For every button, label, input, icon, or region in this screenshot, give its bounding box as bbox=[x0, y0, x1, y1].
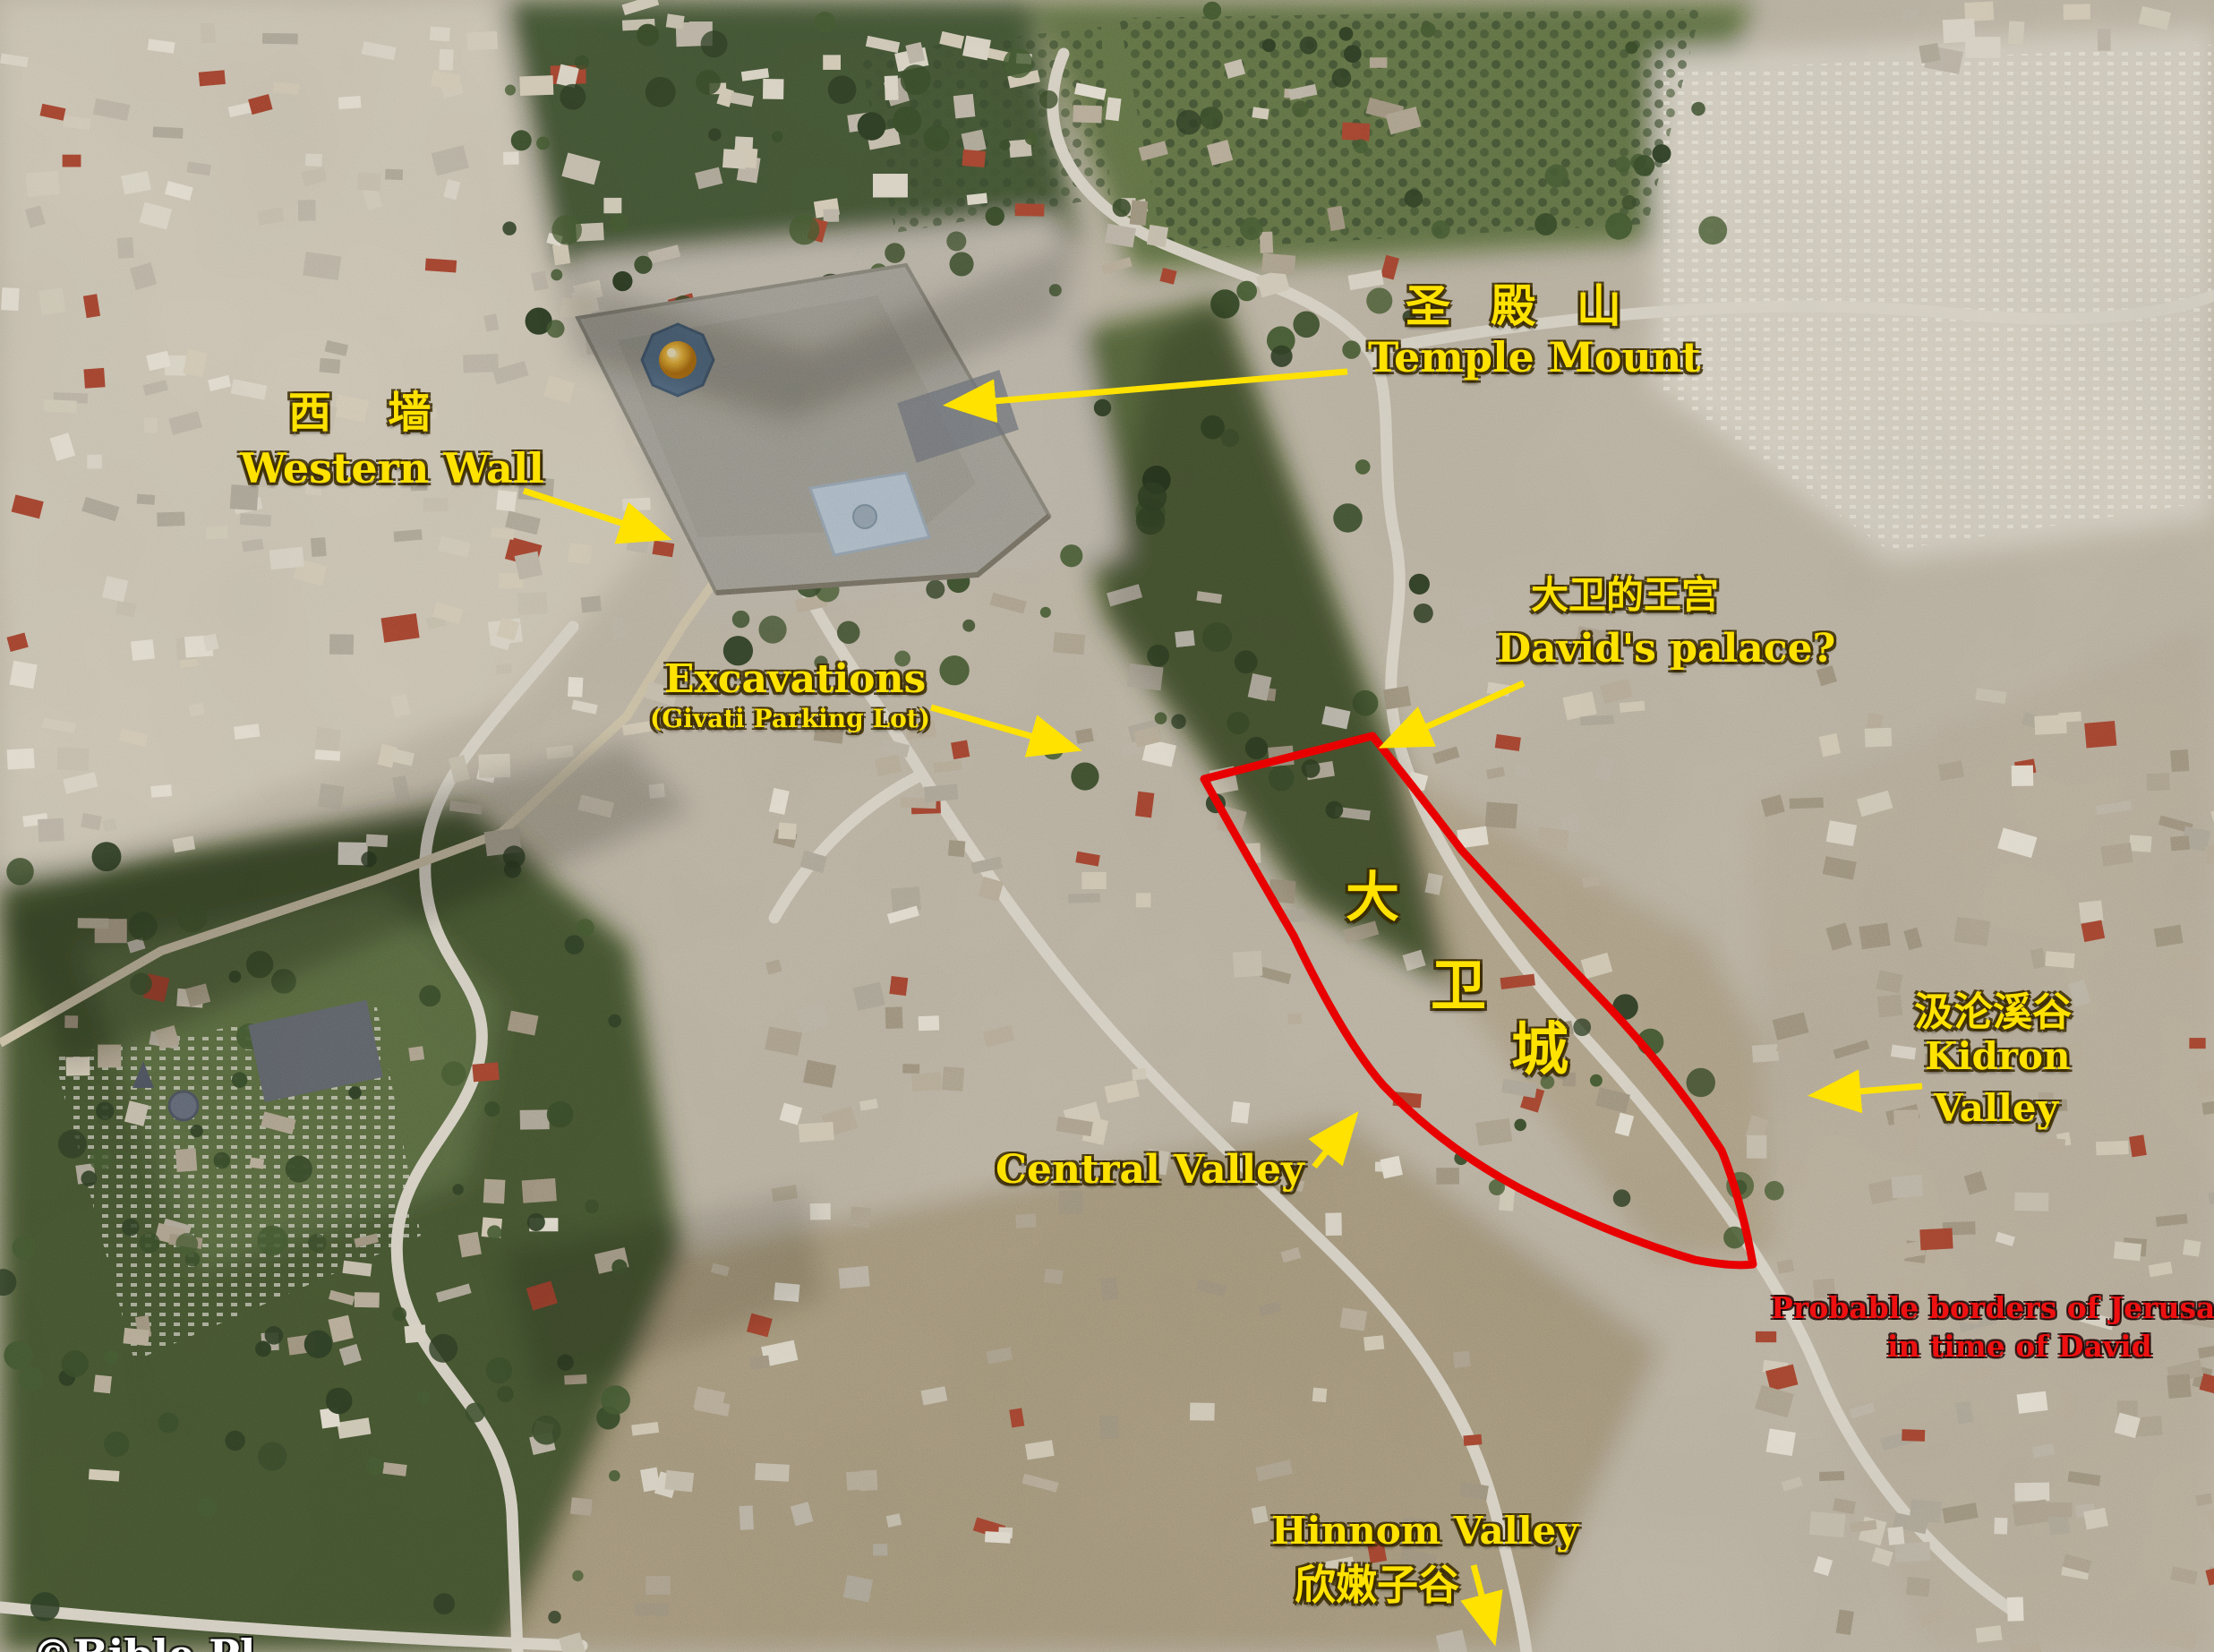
label-kidron-valley-en1: Kidron bbox=[1925, 1037, 2071, 1076]
label-hinnom-valley-zh: 欣嫩子谷 bbox=[1295, 1563, 1459, 1606]
photo-grain bbox=[0, 0, 2214, 1652]
label-city-of-david-char3: 城 bbox=[1511, 1021, 1569, 1081]
label-temple-mount-zh: 圣 殿 山 bbox=[1406, 283, 1634, 330]
aerial-photograph bbox=[0, 0, 2214, 1652]
label-kidron-valley-zh: 汲沦溪谷 bbox=[1914, 992, 2072, 1033]
label-davids-palace-en: David's palace? bbox=[1497, 629, 1835, 670]
label-kidron-valley-en2: Valley bbox=[1934, 1089, 2058, 1128]
label-temple-mount-en: Temple Mount bbox=[1368, 336, 1701, 379]
label-borders-note-line2: in time of David bbox=[1887, 1331, 2152, 1363]
label-hinnom-valley-en: Hinnom Valley bbox=[1271, 1511, 1578, 1551]
label-western-wall-en: Western Wall bbox=[240, 447, 544, 490]
label-western-wall-zh: 西 墙 bbox=[288, 390, 440, 435]
label-city-of-david-char1: 大 bbox=[1346, 870, 1399, 927]
annotated-aerial-photo: 圣 殿 山 Temple Mount 西 墙 Western Wall Exca… bbox=[0, 0, 2214, 1652]
label-city-of-david-char2: 卫 bbox=[1431, 956, 1486, 1014]
watermark: ©Bible Pl bbox=[32, 1633, 255, 1652]
label-excavations-subtitle: (Givati Parking Lot) bbox=[650, 706, 930, 732]
label-borders-note-line1: Probable borders of Jerusalem bbox=[1771, 1293, 2214, 1324]
label-davids-palace-zh: 大卫的王宫 bbox=[1531, 576, 1719, 615]
label-excavations-title: Excavations bbox=[664, 659, 926, 700]
label-central-valley: Central Valley bbox=[996, 1150, 1304, 1191]
